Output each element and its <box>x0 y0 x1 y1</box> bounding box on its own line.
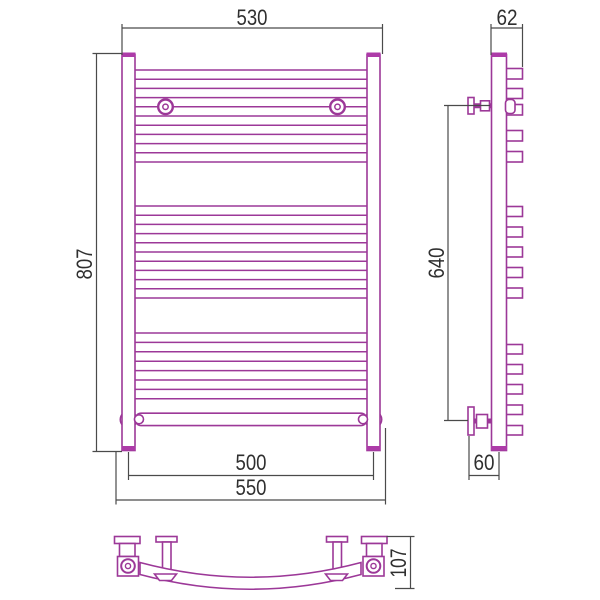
front-post-right-top-cap <box>367 53 381 58</box>
side-view <box>468 53 523 451</box>
label-front-height: 807 <box>72 249 97 280</box>
top-bracket-stem-right <box>327 537 348 571</box>
front-top-bracket-left <box>158 100 173 115</box>
front-rungs-bottom-group <box>135 333 367 399</box>
top-corner-fitting-left <box>115 537 141 577</box>
dimension-labels: 530 62 807 640 500 550 60 107 <box>72 5 518 578</box>
front-post-right <box>367 55 380 451</box>
dimension-annotations <box>93 24 523 589</box>
front-rungs-middle-group <box>135 206 367 298</box>
side-bar-top-cap <box>491 53 507 58</box>
label-mounting-height: 640 <box>424 248 449 279</box>
top-corner-fitting-right <box>362 537 388 577</box>
front-collector-tube <box>135 413 367 425</box>
label-center-distance: 500 <box>236 450 267 475</box>
label-front-width: 530 <box>237 5 268 30</box>
drawing-canvas: 530 62 807 640 500 550 60 107 <box>0 0 600 600</box>
dimension-640 <box>444 106 490 421</box>
top-bracket-foot-left <box>155 574 177 581</box>
front-post-left-bottom-cap <box>122 446 136 451</box>
front-post-right-bottom-cap <box>367 446 381 451</box>
label-side-depth: 62 <box>497 5 518 30</box>
front-post-left <box>122 55 135 451</box>
side-collar-fitting <box>506 100 516 114</box>
front-view <box>120 53 381 451</box>
label-wall-offset: 60 <box>474 450 495 475</box>
label-top-depth: 107 <box>386 549 411 578</box>
side-bar <box>492 55 507 451</box>
front-collector-plug-left <box>135 415 144 424</box>
side-bottom-wall-bracket <box>468 407 492 435</box>
front-top-bracket-right <box>330 100 345 115</box>
top-view <box>115 537 388 590</box>
front-collector-plug-right <box>359 415 368 424</box>
front-post-left-top-cap <box>122 53 136 58</box>
technical-drawing: 530 62 807 640 500 550 60 107 <box>0 0 600 600</box>
top-bracket-stem-left <box>156 537 177 571</box>
label-overall-width: 550 <box>236 475 267 500</box>
top-bracket-foot-right <box>326 574 348 581</box>
front-rungs-top-group <box>135 70 367 162</box>
